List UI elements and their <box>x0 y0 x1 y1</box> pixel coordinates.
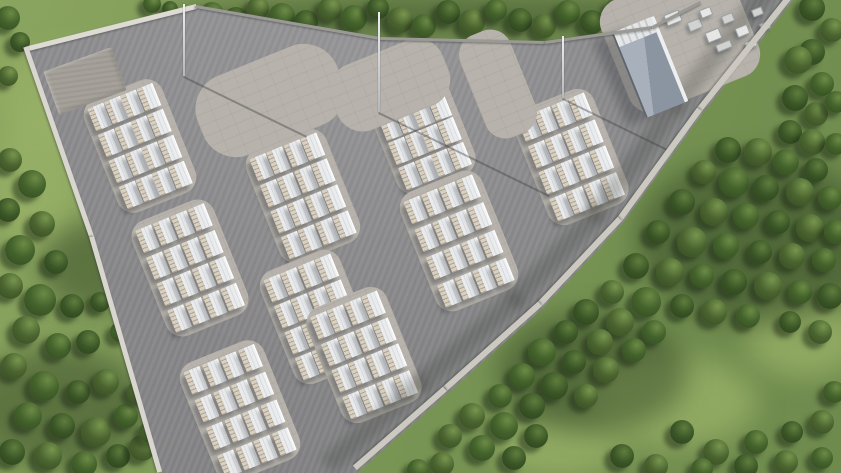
aerial-render-canvas <box>0 0 841 473</box>
facility-layer <box>0 0 841 473</box>
lightning-mast <box>562 36 564 98</box>
lightning-mast <box>183 4 185 76</box>
lightning-mast <box>378 12 380 112</box>
